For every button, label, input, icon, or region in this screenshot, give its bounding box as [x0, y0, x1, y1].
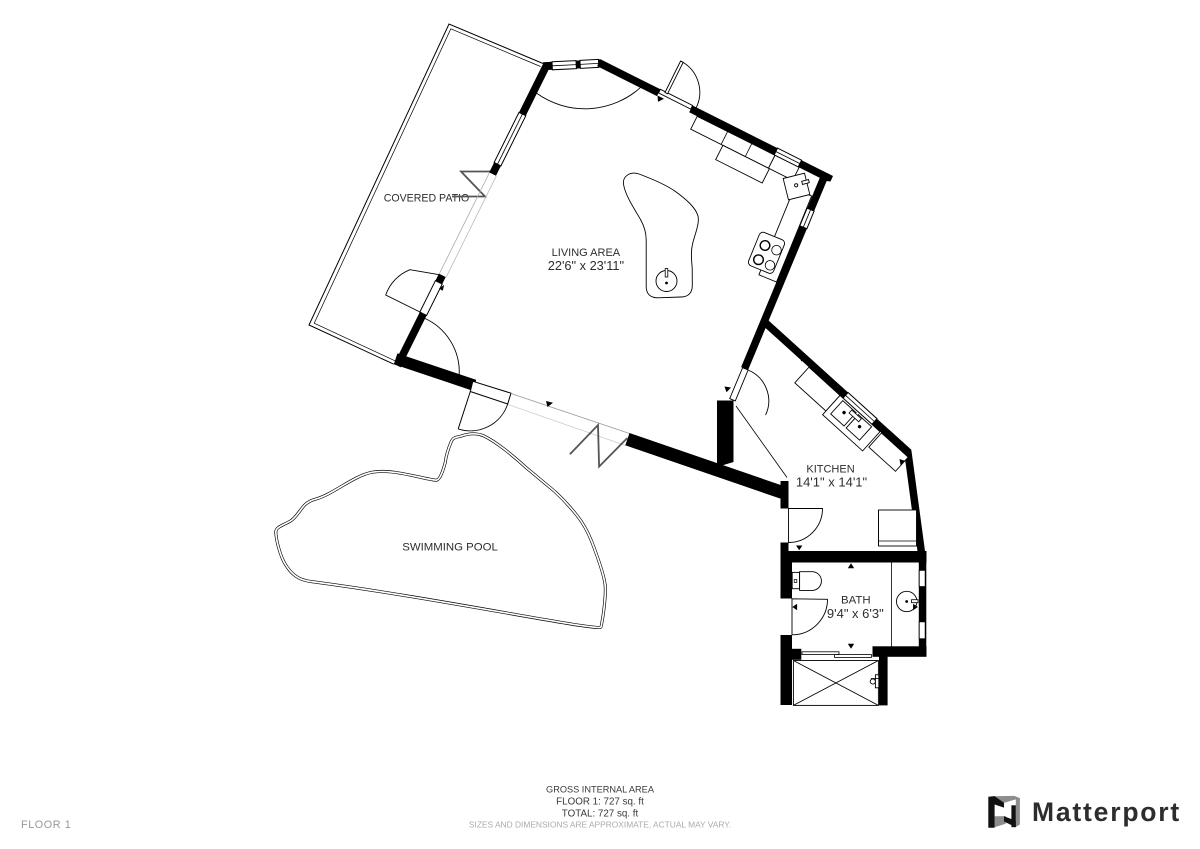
svg-text:COVERED PATIO: COVERED PATIO — [384, 192, 470, 204]
svg-text:22'6" x 23'11": 22'6" x 23'11" — [548, 258, 624, 273]
svg-text:FLOOR 1: FLOOR 1 — [21, 819, 71, 831]
svg-text:SIZES AND DIMENSIONS ARE APPRO: SIZES AND DIMENSIONS ARE APPROXIMATE, AC… — [469, 820, 731, 830]
svg-text:GROSS INTERNAL AREA: GROSS INTERNAL AREA — [546, 785, 655, 795]
svg-text:14'1" x 14'1": 14'1" x 14'1" — [796, 475, 868, 490]
svg-text:9'4" x 6'3": 9'4" x 6'3" — [827, 606, 884, 621]
svg-text:BATH: BATH — [841, 595, 871, 607]
svg-text:TOTAL: 727 sq. ft: TOTAL: 727 sq. ft — [562, 809, 639, 820]
svg-text:Matterport: Matterport — [1032, 797, 1181, 827]
svg-text:FLOOR 1: 727 sq. ft: FLOOR 1: 727 sq. ft — [556, 797, 644, 808]
svg-text:SWIMMING POOL: SWIMMING POOL — [402, 542, 498, 554]
